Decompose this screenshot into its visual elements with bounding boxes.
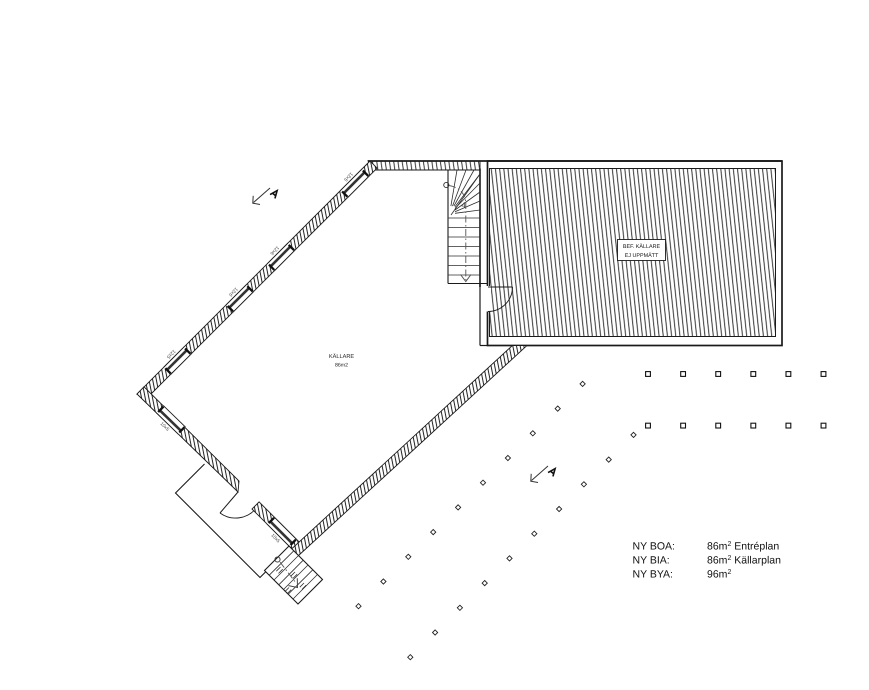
svg-text:86m2 Källarplan: 86m2 Källarplan xyxy=(707,555,781,567)
svg-text:EJ UPPMÄTT: EJ UPPMÄTT xyxy=(625,252,659,259)
svg-text:NY BIA:: NY BIA: xyxy=(633,555,670,567)
svg-text:86m2 Entréplan: 86m2 Entréplan xyxy=(707,541,779,553)
svg-text:86m2: 86m2 xyxy=(335,363,348,369)
svg-text:4: 4 xyxy=(462,201,466,210)
svg-text:NY BYA:: NY BYA: xyxy=(633,569,673,581)
svg-text:96m2: 96m2 xyxy=(707,569,731,581)
svg-text:BEF. KÄLLARE: BEF. KÄLLARE xyxy=(623,243,661,250)
svg-text:NY BOA:: NY BOA: xyxy=(633,541,675,553)
svg-text:KÄLLARE: KÄLLARE xyxy=(329,353,354,360)
